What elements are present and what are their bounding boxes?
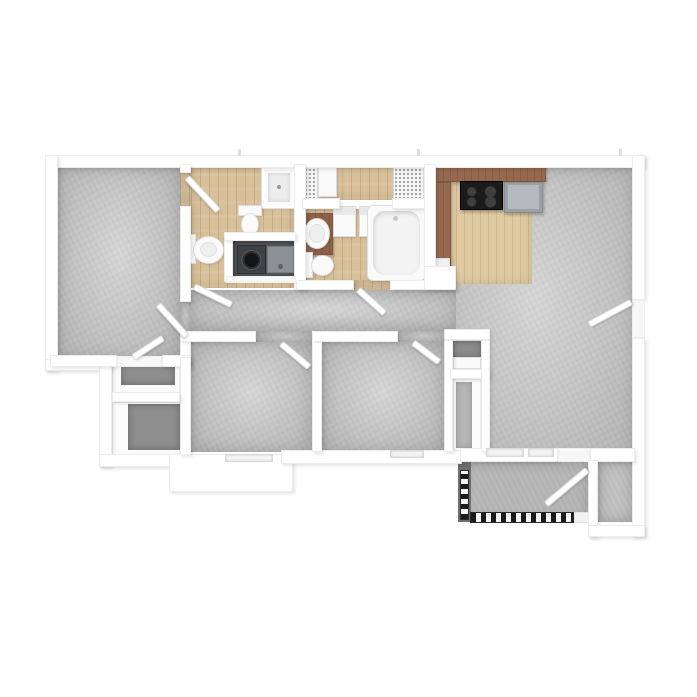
bedroom-3-closet-floor	[453, 341, 481, 357]
refrigerator-top	[508, 185, 539, 209]
shower-drain-icon	[277, 185, 281, 189]
exterior-wall-left-lower	[99, 359, 112, 467]
wall-laundry-top	[224, 232, 296, 241]
bathtub-drain-icon	[393, 216, 398, 221]
linen-cabinet	[318, 167, 337, 197]
wall-closet-a-east	[180, 357, 191, 455]
wall-bath2-east	[424, 164, 436, 268]
exterior-wall-left	[45, 155, 58, 371]
pedestal-sink-bowl	[200, 242, 217, 257]
primary-bedroom-floor	[58, 168, 180, 358]
wall-closet-b-east	[481, 340, 490, 452]
bedroom-3-floor	[322, 342, 444, 452]
wall-dressing-divider-left	[302, 198, 340, 209]
towel-shelf-1	[333, 206, 356, 237]
patio-railing-left	[460, 470, 469, 520]
exterior-wall-top	[45, 155, 645, 168]
wall-hall-south-b	[312, 331, 398, 342]
range	[460, 181, 503, 210]
bedroom-2-door-opening	[256, 331, 312, 342]
wall-bed2-bed3-divider	[312, 342, 322, 452]
window-living-2	[528, 448, 554, 457]
wall-bed1-east	[180, 206, 191, 302]
washer	[237, 245, 266, 274]
primary-walk-in-closet-floor	[121, 364, 175, 385]
entry-door-opening	[632, 300, 645, 338]
coat-closet-floor	[456, 382, 472, 448]
floor-plan-rendering	[0, 0, 697, 697]
exterior-wall-right-lower	[632, 338, 645, 537]
window-bedroom-3	[390, 450, 424, 458]
closet-shelf	[453, 357, 481, 369]
dryer-knob-icon	[278, 264, 283, 269]
vanity-sink-bowl	[309, 224, 325, 243]
closet-door-opening	[117, 356, 162, 367]
wall-joint-tick	[238, 149, 241, 156]
wall-closet-b-north	[444, 329, 490, 340]
toilet-2	[311, 255, 334, 276]
wall-closet-a-divider	[112, 392, 180, 402]
window-bedroom-2	[225, 454, 273, 462]
window-living-1	[486, 448, 524, 457]
wall-kitchen-pillar	[424, 266, 456, 290]
wall-bathrooms-divider	[294, 164, 306, 290]
wall-hall-south-a	[180, 331, 256, 342]
primary-storage-closet-floor	[128, 404, 180, 450]
outdoor-storage-floor	[598, 462, 632, 522]
exterior-wall-right-upper	[632, 155, 645, 300]
bedroom-3-door-opening	[398, 331, 446, 342]
wire-shelf-right	[393, 167, 424, 199]
wall-closet-b-west	[444, 340, 453, 452]
storage-wall-bottom	[588, 525, 645, 537]
exterior-wall-bottom-c	[281, 450, 462, 464]
wall-bed1-south-left	[50, 355, 117, 367]
patio-door-opening	[558, 448, 590, 462]
wall-bed1-east-cap	[180, 164, 191, 173]
wall-joint-tick	[619, 149, 622, 156]
laundry-threshold	[226, 276, 296, 283]
wall-joint-tick	[417, 149, 420, 156]
patio-railing-front	[470, 512, 574, 523]
wall-hall-north-a	[296, 280, 354, 290]
hallway-floor	[191, 290, 456, 331]
